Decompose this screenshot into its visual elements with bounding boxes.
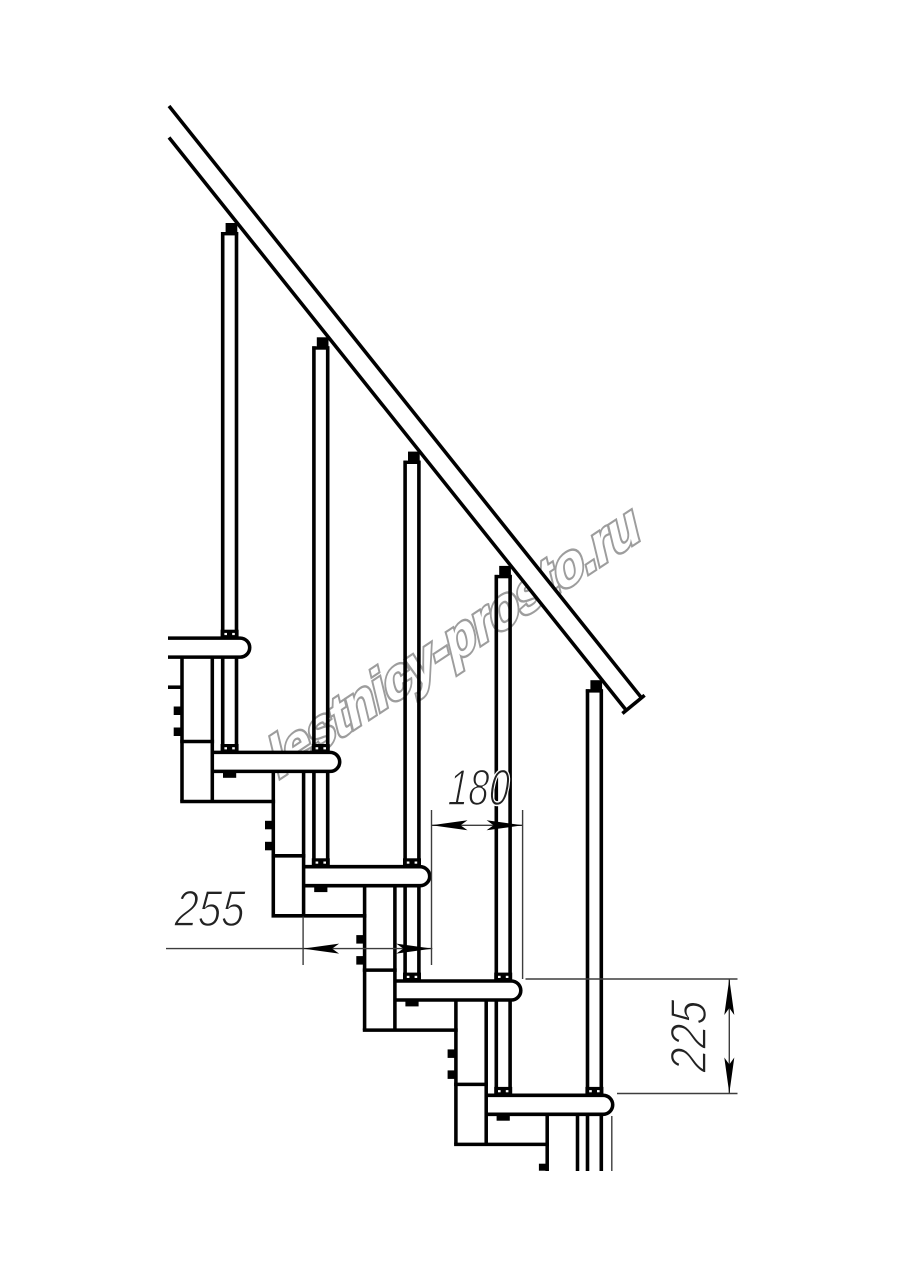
svg-text:255: 255: [173, 880, 248, 937]
svg-text:225: 225: [659, 998, 716, 1074]
svg-text:180: 180: [447, 760, 511, 816]
